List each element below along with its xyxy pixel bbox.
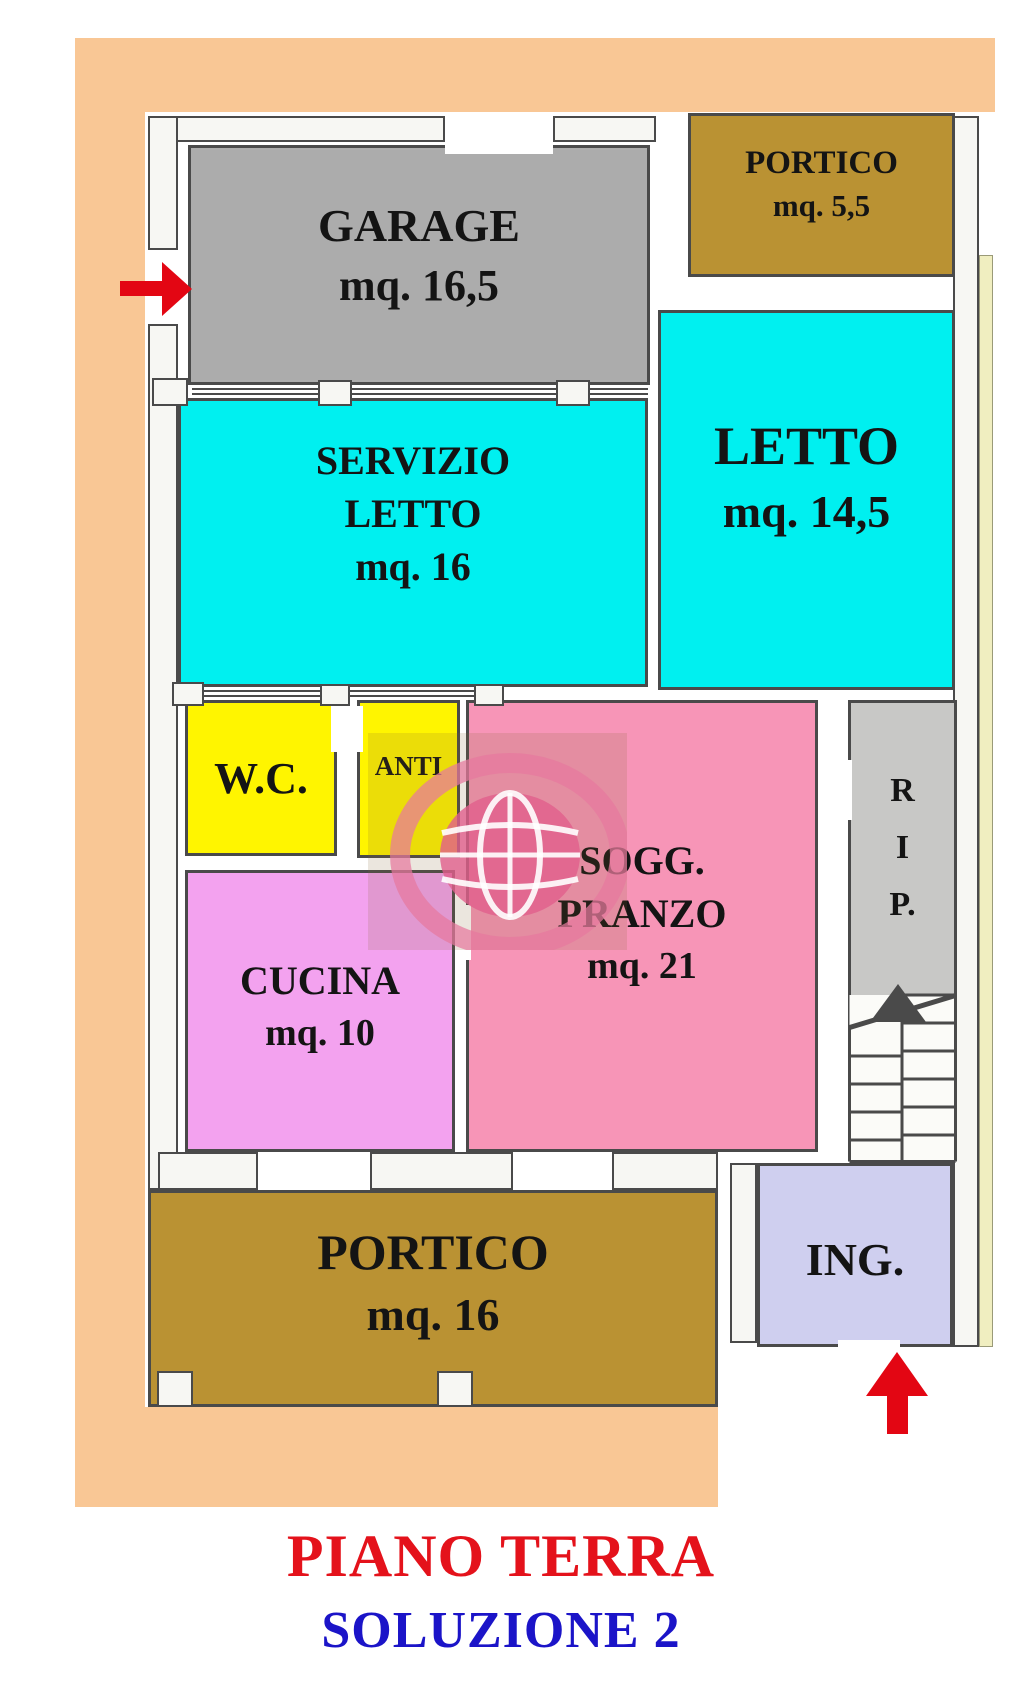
room-portico-bottom-label: PORTICO mq. 16 — [151, 1219, 715, 1346]
main-entrance-arrow-head-icon — [866, 1352, 928, 1396]
neighbor-strip — [979, 255, 993, 1347]
window-post — [152, 378, 188, 406]
room-servizio-letto: SERVIZIO LETTO mq. 16 — [178, 398, 648, 687]
room-ing: ING. — [757, 1163, 953, 1347]
watermark-globe-logo — [368, 733, 627, 950]
room-letto: LETTO mq. 14,5 — [658, 310, 955, 690]
sogg-rip-door-opening — [818, 760, 852, 820]
wc-anti-door-opening — [331, 706, 363, 752]
wall-portico-seg-b — [370, 1152, 513, 1190]
room-servizio-letto-label: SERVIZIO LETTO mq. 16 — [181, 435, 645, 593]
window-post — [474, 684, 504, 706]
plan-area-cutout — [718, 1407, 1024, 1517]
window-post — [172, 682, 204, 706]
garage-entrance-arrow-icon — [120, 281, 164, 296]
room-ing-label: ING. — [760, 1230, 950, 1291]
wall-left-upper — [148, 116, 178, 250]
wall-top-b — [553, 116, 656, 142]
garage-top-opening — [445, 114, 553, 154]
page-title: PIANO TERRA — [0, 1522, 1002, 1591]
wall-ing-left — [730, 1163, 757, 1343]
room-portico-top-label: PORTICO mq. 5,5 — [691, 142, 952, 226]
room-rip-label: R I P. — [850, 762, 955, 933]
window-post — [318, 380, 352, 406]
wall-top-a — [158, 116, 445, 142]
room-portico-bottom: PORTICO mq. 16 — [148, 1190, 718, 1407]
room-portico-top: PORTICO mq. 5,5 — [688, 113, 955, 277]
portico-pillar — [157, 1371, 193, 1407]
room-garage: GARAGE mq. 16,5 — [188, 145, 650, 385]
room-wc: W.C. — [185, 700, 337, 856]
floorplan-page: GARAGE mq. 16,5 PORTICO mq. 5,5 SERVIZIO… — [0, 0, 1024, 1683]
wall-portico-seg-c — [612, 1152, 718, 1190]
wall-portico-seg-a — [158, 1152, 258, 1190]
page-subtitle: SOLUZIONE 2 — [0, 1601, 1002, 1660]
room-cucina-label: CUCINA mq. 10 — [188, 955, 452, 1058]
room-wc-label: W.C. — [188, 750, 334, 808]
portico-pillar — [437, 1371, 473, 1407]
room-letto-label: LETTO mq. 14,5 — [661, 411, 952, 543]
wall-left-lower — [148, 324, 178, 1190]
window-post — [556, 380, 590, 406]
ing-entrance-opening — [838, 1340, 900, 1352]
caption: PIANO TERRA SOLUZIONE 2 — [0, 1522, 1002, 1660]
room-garage-label: GARAGE mq. 16,5 — [191, 196, 647, 315]
main-entrance-arrow-icon — [887, 1394, 908, 1434]
garage-entrance-arrow-head-icon — [162, 262, 192, 316]
window-post — [320, 684, 350, 706]
